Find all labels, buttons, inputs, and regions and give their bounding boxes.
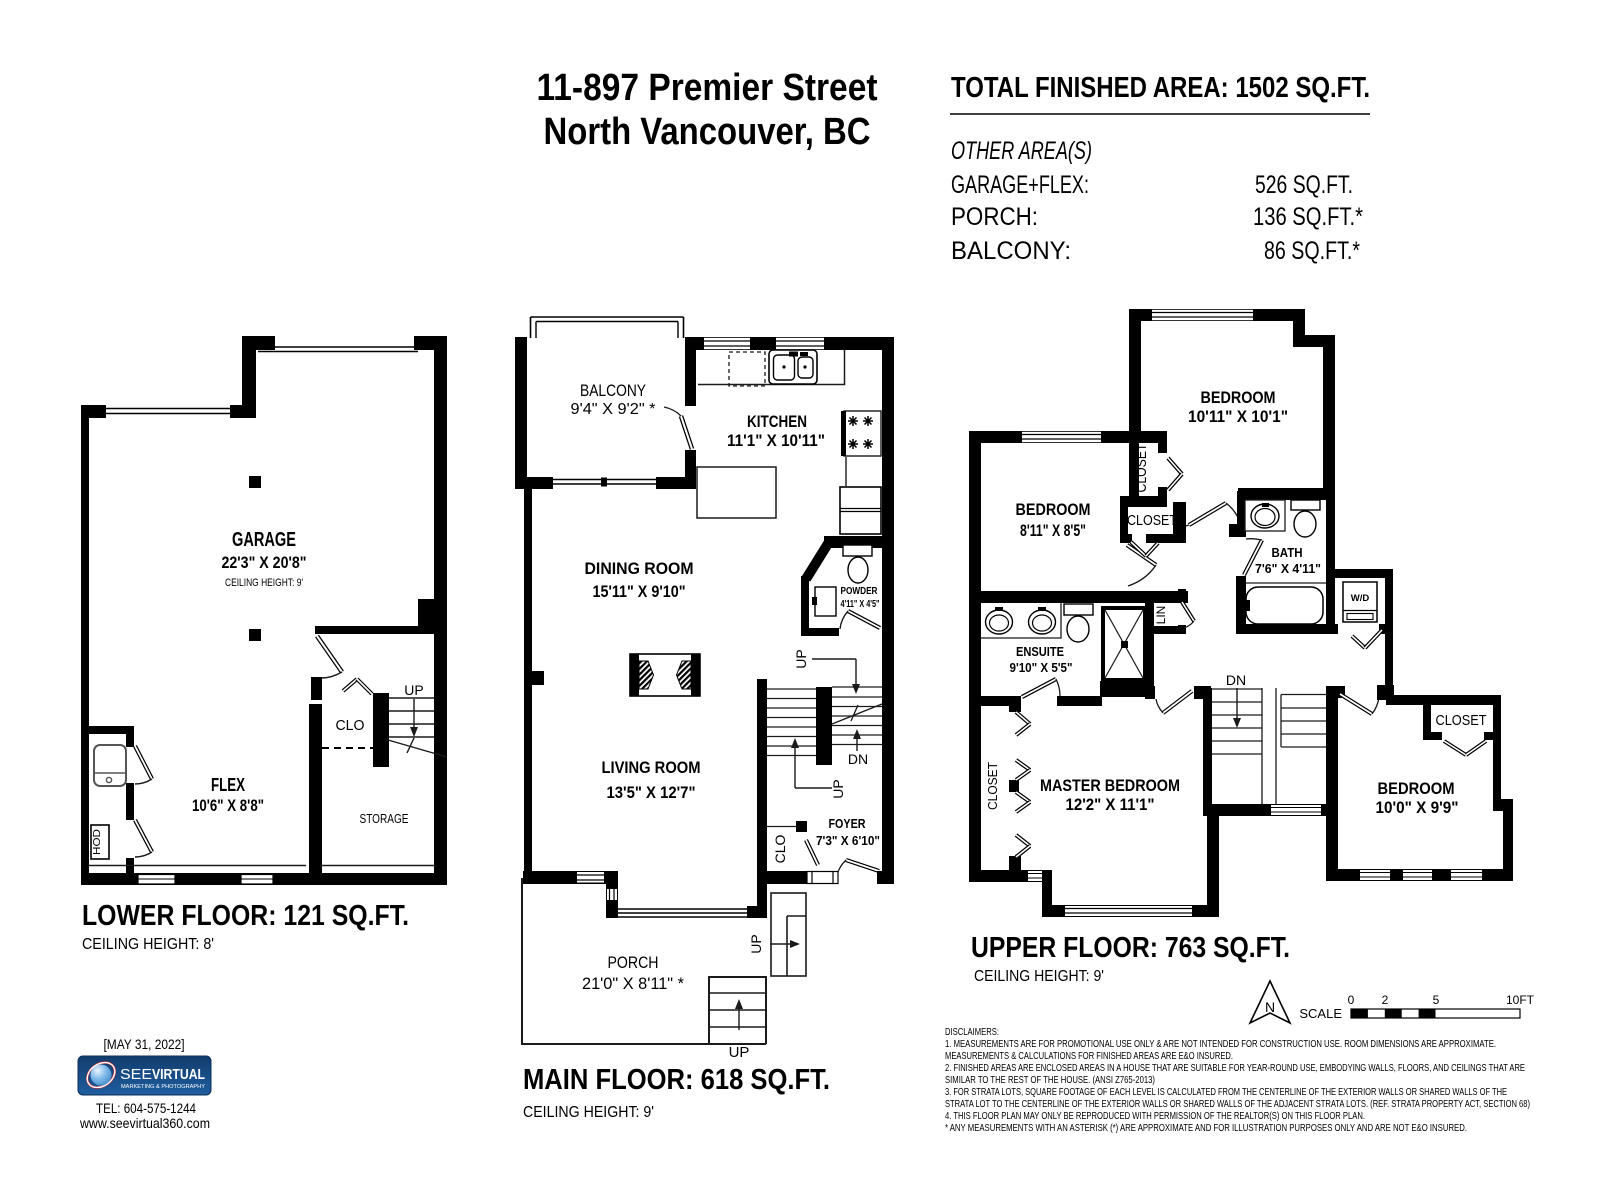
svg-text:3. FOR STRATA LOTS, SQUARE FOO: 3. FOR STRATA LOTS, SQUARE FOOTAGE OF EA… — [945, 1086, 1507, 1098]
svg-text:PORCH: PORCH — [608, 953, 659, 972]
svg-text:UP: UP — [404, 682, 423, 698]
svg-text:UP: UP — [748, 934, 764, 953]
svg-text:10'6" X 8'8": 10'6" X 8'8" — [192, 796, 264, 815]
svg-text:12'2" X 11'1": 12'2" X 11'1" — [1066, 795, 1155, 814]
svg-text:11-897 Premier Street: 11-897 Premier Street — [537, 67, 878, 109]
svg-text:UP: UP — [793, 649, 809, 668]
svg-text:SIMILAR TO THE REST OF THE HOU: SIMILAR TO THE REST OF THE HOUSE. (ANSI … — [945, 1074, 1155, 1086]
svg-text:POWDER: POWDER — [841, 586, 879, 597]
svg-text:GARAGE: GARAGE — [232, 529, 296, 551]
svg-text:7'6" X 4'11": 7'6" X 4'11" — [1255, 561, 1321, 576]
svg-text:2: 2 — [1382, 993, 1389, 1007]
svg-text:CEILING HEIGHT: 9': CEILING HEIGHT: 9' — [225, 577, 303, 589]
svg-text:DN: DN — [848, 751, 868, 767]
svg-text:CEILING HEIGHT: 8': CEILING HEIGHT: 8' — [82, 936, 214, 953]
svg-text:HOD: HOD — [91, 829, 103, 855]
svg-text:* ANY MEASUREMENTS WITH AN AST: * ANY MEASUREMENTS WITH AN ASTERISK (*) … — [945, 1122, 1467, 1134]
svg-text:LIN: LIN — [1154, 606, 1168, 625]
svg-text:CEILING HEIGHT: 9': CEILING HEIGHT: 9' — [974, 968, 1104, 985]
svg-text:[MAY 31, 2022]: [MAY 31, 2022] — [104, 1037, 185, 1052]
svg-text:BEDROOM: BEDROOM — [1016, 500, 1091, 519]
svg-text:www.seevirtual360.com: www.seevirtual360.com — [79, 1115, 210, 1131]
svg-text:10FT: 10FT — [1506, 993, 1535, 1007]
svg-text:CLO: CLO — [772, 835, 788, 864]
svg-text:LOWER FLOOR: 121 SQ.FT.: LOWER FLOOR: 121 SQ.FT. — [82, 900, 409, 932]
svg-text:VIRTUAL: VIRTUAL — [152, 1066, 205, 1083]
svg-text:CLOSET: CLOSET — [1133, 444, 1150, 493]
svg-text:10'11" X 10'1": 10'11" X 10'1" — [1188, 407, 1288, 426]
svg-text:BEDROOM: BEDROOM — [1378, 779, 1455, 798]
svg-text:MEASUREMENTS & CALCULATIONS FO: MEASUREMENTS & CALCULATIONS FOR FINISHED… — [945, 1050, 1233, 1062]
svg-text:CLOSET: CLOSET — [985, 762, 1000, 810]
svg-text:UP: UP — [729, 1044, 750, 1061]
svg-text:ENSUITE: ENSUITE — [1016, 644, 1064, 659]
svg-text:PORCH:: PORCH: — [951, 203, 1038, 231]
svg-text:CLOSET: CLOSET — [1127, 512, 1177, 529]
svg-text:5: 5 — [1433, 993, 1440, 1007]
svg-text:North Vancouver, BC: North Vancouver, BC — [544, 111, 871, 153]
svg-text:TOTAL FINISHED AREA: 1502 SQ.: TOTAL FINISHED AREA: 1502 SQ.FT. — [951, 72, 1370, 104]
svg-text:MARKETING & PHOTOGRAPHY: MARKETING & PHOTOGRAPHY — [121, 1084, 206, 1090]
svg-text:4. THIS FLOOR PLAN MAY ONLY BE: 4. THIS FLOOR PLAN MAY ONLY BE REPRODUCE… — [945, 1110, 1365, 1122]
svg-text:0: 0 — [1348, 993, 1355, 1007]
svg-text:STRATA LOT TO THE CENTERLINE O: STRATA LOT TO THE CENTERLINE OF THE EXTE… — [945, 1098, 1530, 1110]
svg-text:BATH: BATH — [1272, 545, 1303, 560]
svg-text:DN: DN — [1226, 672, 1246, 688]
svg-text:526 SQ.FT.: 526 SQ.FT. — [1255, 171, 1353, 199]
svg-text:UP: UP — [830, 779, 846, 798]
svg-text:7'3" X 6'10": 7'3" X 6'10" — [816, 833, 880, 848]
svg-text:11'1" X 10'11": 11'1" X 10'11" — [727, 431, 825, 450]
svg-text:10'0" X 9'9": 10'0" X 9'9" — [1376, 798, 1459, 817]
svg-text:LIVING ROOM: LIVING ROOM — [602, 758, 701, 777]
svg-text:13'5" X 12'7": 13'5" X 12'7" — [607, 783, 696, 802]
svg-text:DINING ROOM: DINING ROOM — [585, 559, 694, 578]
svg-text:OTHER AREA(S): OTHER AREA(S) — [951, 137, 1092, 165]
svg-text:9'4" X 9'2" *: 9'4" X 9'2" * — [571, 401, 656, 418]
svg-text:4'11" X 4'5": 4'11" X 4'5" — [841, 599, 880, 610]
svg-text:DISCLAIMERS:: DISCLAIMERS: — [945, 1026, 999, 1038]
svg-text:TEL: 604-575-1244: TEL: 604-575-1244 — [96, 1100, 196, 1116]
svg-text:CLOSET: CLOSET — [1436, 712, 1487, 729]
svg-text:2. FINISHED AREAS ARE ENCLOSED: 2. FINISHED AREAS ARE ENCLOSED AREAS IN … — [945, 1062, 1525, 1074]
svg-text:86 SQ.FT.*: 86 SQ.FT.* — [1264, 237, 1360, 265]
svg-text:21'0" X 8'11" *: 21'0" X 8'11" * — [582, 974, 684, 993]
svg-text:SEE: SEE — [120, 1066, 152, 1083]
svg-text:MASTER BEDROOM: MASTER BEDROOM — [1040, 776, 1180, 795]
svg-text:9'10" X 5'5": 9'10" X 5'5" — [1010, 660, 1073, 675]
svg-text:MAIN FLOOR: 618 SQ.FT.: MAIN FLOOR: 618 SQ.FT. — [523, 1064, 830, 1096]
svg-text:CLO: CLO — [336, 717, 365, 734]
svg-text:SCALE: SCALE — [1299, 1006, 1342, 1021]
svg-text:15'11" X 9'10": 15'11" X 9'10" — [593, 582, 686, 601]
svg-text:N: N — [1265, 999, 1275, 1015]
svg-text:W/D: W/D — [1351, 593, 1370, 604]
svg-text:FOYER: FOYER — [829, 816, 866, 831]
svg-text:BALCONY:: BALCONY: — [951, 237, 1071, 265]
svg-text:CEILING HEIGHT: 9': CEILING HEIGHT: 9' — [523, 1104, 654, 1121]
svg-text:GARAGE+FLEX:: GARAGE+FLEX: — [951, 171, 1089, 199]
svg-text:BEDROOM: BEDROOM — [1201, 388, 1276, 407]
svg-text:136 SQ.FT.*: 136 SQ.FT.* — [1253, 203, 1363, 231]
svg-text:1. MEASUREMENTS ARE FOR PROMOT: 1. MEASUREMENTS ARE FOR PROMOTIONAL USE … — [945, 1038, 1496, 1050]
svg-text:UPPER FLOOR: 763 SQ.FT.: UPPER FLOOR: 763 SQ.FT. — [971, 932, 1290, 964]
svg-text:STORAGE: STORAGE — [360, 811, 409, 826]
svg-text:8'11" X 8'5": 8'11" X 8'5" — [1020, 521, 1086, 540]
svg-text:22'3" X 20'8": 22'3" X 20'8" — [222, 553, 307, 572]
svg-text:FLEX: FLEX — [211, 775, 245, 795]
svg-text:KITCHEN: KITCHEN — [747, 412, 807, 431]
svg-text:BALCONY: BALCONY — [580, 381, 646, 400]
